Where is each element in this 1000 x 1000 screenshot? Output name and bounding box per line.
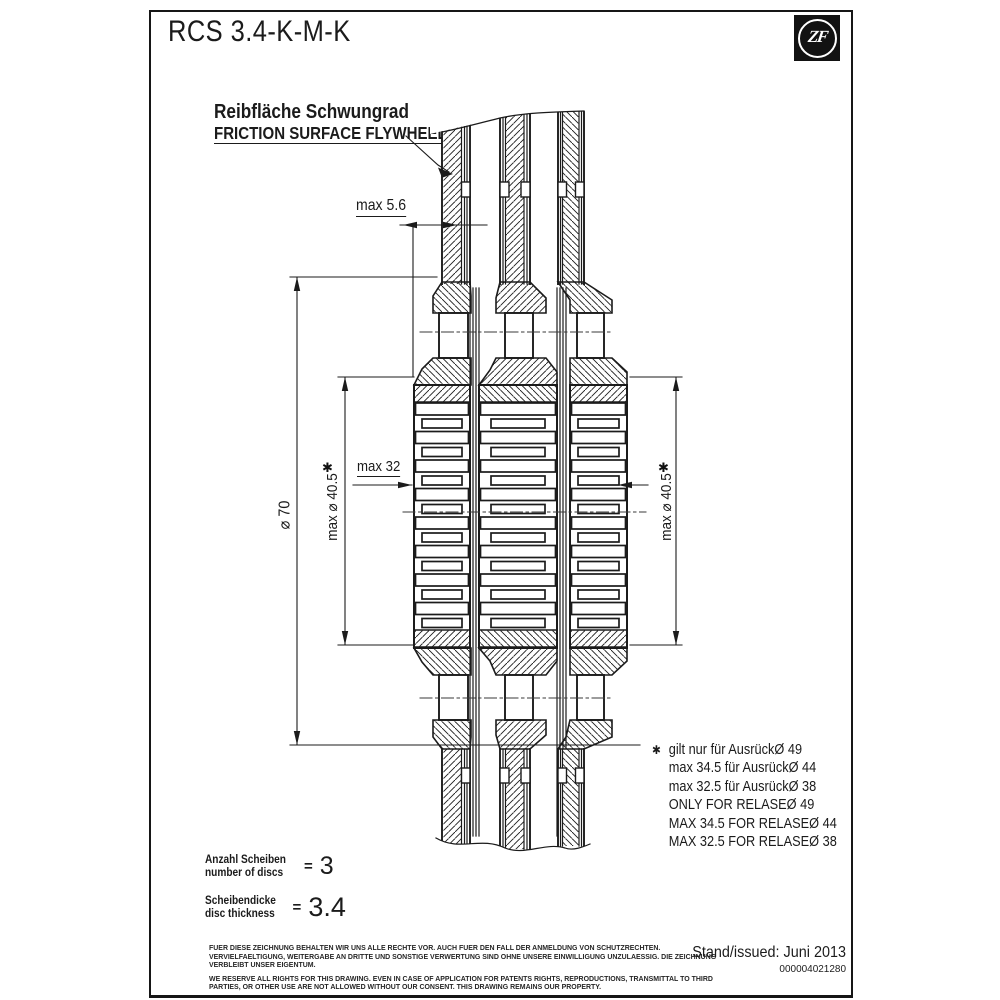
disc-pack	[414, 385, 627, 648]
spec-number-of-discs: Anzahl Scheiben number of discs = 3	[205, 852, 334, 881]
equals-sign: =	[293, 899, 302, 916]
spec-value: 3	[320, 852, 334, 881]
drawing-title: RCS 3.4-K-M-K	[168, 16, 351, 48]
zf-logo-text: ZF	[806, 27, 828, 49]
equals-sign: =	[304, 858, 313, 875]
upper-hubs	[414, 282, 627, 385]
note-line: ONLY FOR RELASEØ 49	[669, 796, 837, 814]
dim-dia-70: ⌀ 70	[278, 501, 295, 530]
note-line: gilt nur für AusrückØ 49	[669, 741, 802, 759]
note-line: max 32.5 für AusrückØ 38	[669, 778, 837, 796]
legal-text-en: WE RESERVE ALL RIGHTS FOR THIS DRAWING. …	[209, 975, 718, 992]
drawing-number: 000004021280	[612, 963, 846, 975]
asterisk-icon: ✱	[322, 460, 333, 476]
dim-max-dia-40-5-right: max ⌀ 40.5	[659, 473, 675, 540]
note-line: MAX 34.5 FOR RELASEØ 44	[669, 815, 837, 833]
spec-label-en: number of discs	[205, 867, 286, 880]
spec-value: 3.4	[308, 892, 346, 923]
asterisk-icon: ✱	[658, 460, 669, 476]
dim-max-dia-40-5-left: max ⌀ 40.5	[325, 473, 341, 540]
zf-logo-ring: ZF	[798, 19, 837, 58]
asterisk-icon: ✱	[652, 741, 669, 759]
dim-max-5-6: max 5.6	[356, 198, 406, 217]
release-notes: ✱ gilt nur für AusrückØ 49 max 34.5 für …	[652, 741, 837, 851]
issue-block: Stand/issued: Juni 2013 000004021280	[600, 944, 846, 975]
issue-date: Stand/issued: Juni 2013	[625, 944, 846, 962]
dim-max-32: max 32	[357, 459, 400, 477]
note-line: MAX 32.5 FOR RELASEØ 38	[669, 833, 837, 851]
spec-label-de: Scheibendicke	[205, 895, 276, 908]
drawing-sheet: RCS 3.4-K-M-K ZF Reibfläche Schwungrad F…	[0, 0, 1000, 1000]
spec-label-de: Anzahl Scheiben	[205, 854, 286, 867]
spec-label-en: disc thickness	[205, 908, 276, 921]
zf-logo: ZF	[794, 15, 840, 61]
note-line: max 34.5 für AusrückØ 44	[669, 759, 837, 777]
spec-disc-thickness: Scheibendicke disc thickness = 3.4	[205, 892, 346, 923]
